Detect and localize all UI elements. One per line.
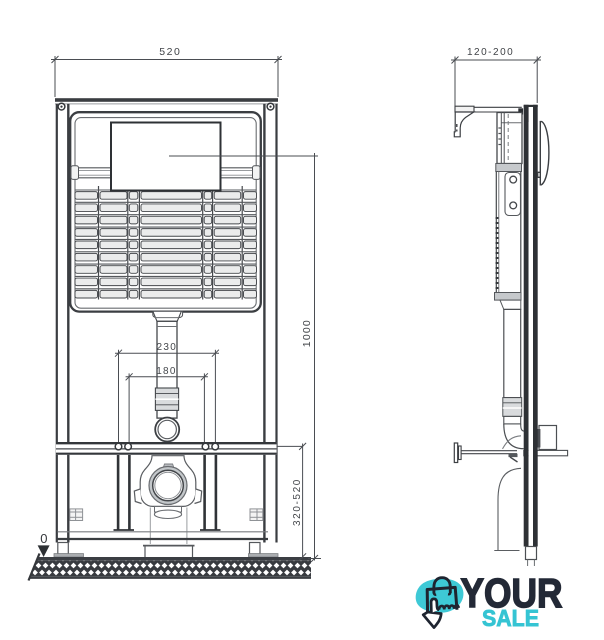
svg-text:0: 0 — [40, 531, 47, 546]
svg-text:120-200: 120-200 — [467, 47, 514, 58]
svg-text:1000: 1000 — [301, 319, 313, 347]
svg-text:SALE: SALE — [482, 605, 539, 631]
svg-text:520: 520 — [159, 46, 181, 58]
svg-text:230: 230 — [157, 342, 178, 353]
svg-text:180: 180 — [156, 366, 177, 377]
svg-text:320-520: 320-520 — [292, 478, 303, 526]
